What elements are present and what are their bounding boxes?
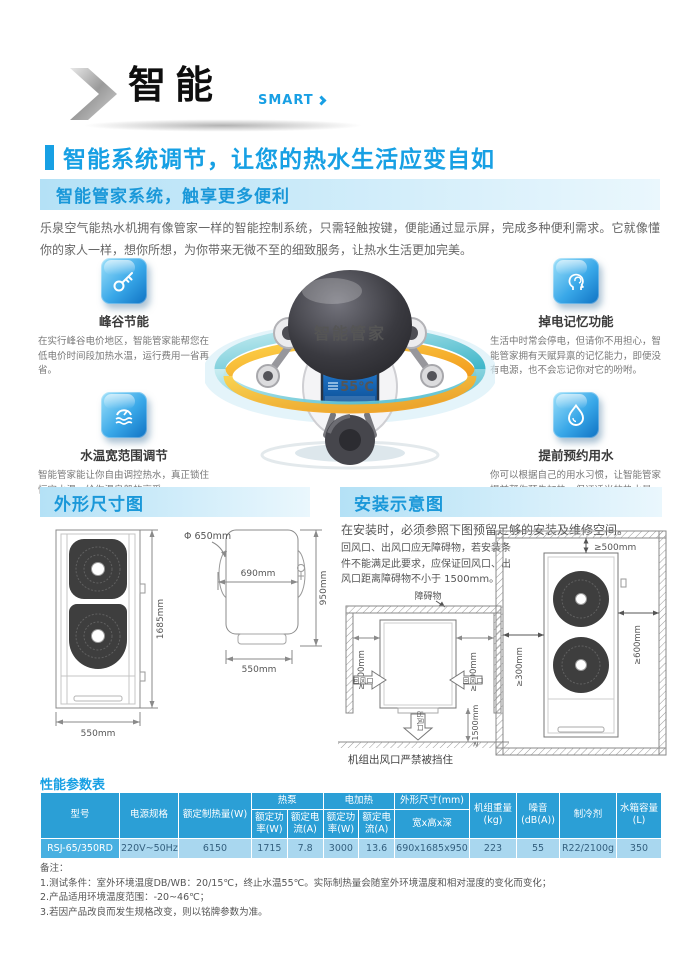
installation-section-header: 安装示意图: [340, 487, 662, 517]
col-eh-current: 额定电流(A): [359, 810, 394, 838]
plan-right-clearance-label: ≥600mm: [469, 652, 479, 692]
cell-tank: 350: [617, 839, 661, 858]
obstacle-label: 障碍物: [414, 590, 441, 602]
robot-head-label: 智能管家: [314, 324, 386, 343]
main-heading: 智能系统调节，让您的热水生活应变自如: [45, 140, 495, 174]
feature-tile: [553, 258, 599, 304]
air-inlet-left-label: 回风口: [353, 677, 374, 685]
key-icon: [111, 268, 137, 294]
top-width-label: 690mm: [241, 569, 276, 579]
feature-desc: 在实行峰谷电价地区，智能管家能帮您在低电价时间段加热水温，运行费用一省再省。: [38, 335, 210, 379]
installation-front-drawing: ≥500mm ≥300mm ≥600mm: [490, 527, 672, 759]
feature-peak-valley: 峰谷节能 在实行峰谷电价地区，智能管家能帮您在低电价时间段加热水温，运行费用一省…: [38, 258, 210, 379]
front-right-clearance-label: ≥600mm: [633, 625, 643, 665]
cell-power-supply: 220V~50Hz: [120, 839, 178, 858]
heading-bar: [45, 145, 54, 170]
spec-table-title: 性能参数表: [40, 774, 105, 793]
col-power-supply: 电源规格: [120, 793, 178, 838]
front-height-label: 1685mm: [156, 599, 166, 639]
air-outlet-label: 出风口: [416, 711, 425, 731]
dimensions-section-header: 外形尺寸图: [40, 487, 310, 517]
feature-temp-range: 水温宽范围调节 智能管家能让你自由调控热水，真正锁住恒定水温，给你温泉般的享受。: [38, 392, 210, 498]
main-heading-text: 智能系统调节，让您的热水生活应变自如: [63, 140, 495, 174]
col-weight: 机组重量 (kg): [470, 793, 516, 838]
feature-tile: [101, 258, 147, 304]
temp-range-icon: [111, 402, 137, 428]
intro-section-header: 智能管家系统，触享更多便利: [40, 179, 660, 210]
feature-tile: [553, 392, 599, 438]
feature-tile: [101, 392, 147, 438]
top-diameter-label: Φ 650mm: [184, 531, 231, 542]
col-dimensions: 外形尺寸(mm): [395, 793, 469, 809]
feature-title: 提前预约用水: [538, 445, 613, 464]
feature-title: 掉电记忆功能: [538, 311, 613, 330]
cell-rated-heating: 6150: [179, 839, 251, 858]
robot-screen-temp: 55℃: [340, 380, 374, 395]
installation-section-title: 安装示意图: [354, 490, 444, 515]
front-top-clearance-label: ≥500mm: [594, 543, 636, 553]
col-rated-heating: 额定制热量(W): [179, 793, 251, 838]
spec-header-row-1: 型号 电源规格 额定制热量(W) 热泵 电加热 外形尺寸(mm) 机组重量 (k…: [41, 793, 661, 809]
feature-power-memory: 掉电记忆功能 生活中时常会停电，但请你不用担心，智能管家拥有天赋异禀的记忆能力，…: [490, 258, 662, 379]
col-dimensions-sub: 宽x高x深: [395, 810, 469, 838]
air-inlet-right-label: 回风口: [463, 677, 484, 685]
cell-dims: 690x1685x950: [395, 839, 469, 858]
page-subtitle: SMART: [258, 93, 325, 108]
cell-weight: 223: [470, 839, 516, 858]
note-item: 2.产品适用环境温度范围：-20~46℃；: [40, 891, 665, 906]
installation-plan-drawing: 障碍物 ≥300mm ≥600mm 回风口 回风口 出风口 ≥1500mm: [336, 590, 511, 750]
water-droplet-icon: [563, 402, 589, 428]
logo-shadow: [78, 119, 368, 132]
spec-table: 型号 电源规格 额定制热量(W) 热泵 电加热 外形尺寸(mm) 机组重量 (k…: [40, 792, 662, 859]
cell-eh-current: 13.6: [359, 839, 394, 858]
feature-water-reserve: 提前预约用水 你可以根据自己的用水习惯，让智能管家提前帮你预先加热，保证适当的热…: [490, 392, 662, 498]
col-refrigerant: 制冷剂: [560, 793, 616, 838]
front-width-label: 550mm: [81, 729, 116, 739]
feature-desc: 生活中时常会停电，但请你不用担心，智能管家拥有天赋异禀的记忆能力，即便没有电源，…: [490, 335, 662, 379]
subtitle-text: SMART: [258, 93, 314, 108]
cell-eh-power: 3000: [324, 839, 359, 858]
col-noise: 噪音 (dB(A)): [517, 793, 559, 838]
col-electric-heating: 电加热: [324, 793, 395, 809]
page: 智能 SMART 智能系统调节，让您的热水生活应变自如 智能管家系统，触享更多便…: [0, 0, 700, 960]
dimensions-section-title: 外形尺寸图: [54, 490, 144, 515]
spec-data-row: RSJ-65/350RD 220V~50Hz 6150 1715 7.8 300…: [41, 839, 661, 858]
feature-title: 水温宽范围调节: [80, 445, 168, 464]
note-item: 3.若因产品改良而发生规格改变，则以铭牌参数为准。: [40, 906, 665, 921]
chevron-right-icon: [316, 96, 326, 106]
robot-illustration: 55℃ 智能管家: [205, 245, 495, 480]
note-item: 1.测试条件：室外环境温度DB/WB：20/15℃，终止水温55℃。实际制热量会…: [40, 877, 665, 892]
logo-chevron-icon: [70, 66, 120, 122]
col-heat-pump: 热泵: [252, 793, 323, 809]
memory-icon: [563, 268, 589, 294]
top-base-width-label: 550mm: [242, 665, 277, 674]
notes-label: 备注：: [40, 862, 665, 877]
cell-hp-power: 1715: [252, 839, 287, 858]
top-depth-label: 950mm: [319, 571, 329, 606]
col-hp-power: 额定功率(W): [252, 810, 287, 838]
installation-caution: 机组出风口严禁被挡住: [348, 752, 453, 767]
notes-block: 备注： 1.测试条件：室外环境温度DB/WB：20/15℃，终止水温55℃。实际…: [40, 862, 665, 921]
col-tank: 水箱容量 (L): [617, 793, 661, 838]
col-hp-current: 额定电流(A): [288, 810, 323, 838]
page-title: 智能: [128, 66, 222, 104]
front-left-clearance-label: ≥300mm: [515, 647, 525, 687]
feature-title: 峰谷节能: [99, 311, 149, 330]
plan-bottom-clearance-label: ≥1500mm: [471, 704, 480, 747]
cell-noise: 55: [517, 839, 559, 858]
cell-refrigerant: R22/2100g: [560, 839, 616, 858]
col-model: 型号: [41, 793, 119, 838]
top-view-drawing: Φ 650mm 690mm 950mm 550mm: [182, 524, 332, 674]
cell-model: RSJ-65/350RD: [41, 839, 119, 858]
cell-hp-current: 7.8: [288, 839, 323, 858]
intro-section-title: 智能管家系统，触享更多便利: [56, 182, 290, 207]
col-eh-power: 额定功率(W): [324, 810, 359, 838]
